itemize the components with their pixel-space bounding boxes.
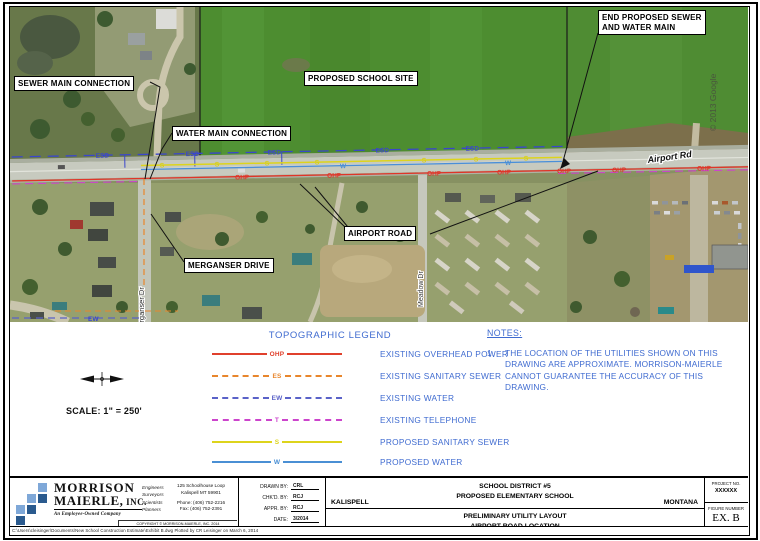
google-credit: © 2013 Google (708, 73, 718, 131)
checked-by-field: CHK'D. BY:RCJ (238, 494, 319, 501)
title-block: MORRISON MAIERLE, INC. An Employee-Owned… (10, 476, 748, 528)
legend-sample-w: W (212, 459, 342, 466)
svg-text:ESD: ESD (268, 149, 282, 156)
legend-area: TOPOGRAPHIC LEGEND OHP EXISTING OVERHEAD… (10, 322, 748, 476)
label-merganser-drive: MERGANSER DRIVE (184, 258, 274, 273)
label-end-proposed-line1: END PROPOSED SEWER (602, 13, 702, 23)
label-proposed-school-site: PROPOSED SCHOOL SITE (304, 71, 418, 86)
drawn-by-field: DRAWN BY:CRL (238, 483, 319, 490)
svg-text:ESD: ESD (466, 145, 480, 152)
figure-number: EX. B (704, 512, 748, 524)
aerial-photo: ESD ESD ESD ESD ESD S S S S S S S (10, 7, 748, 322)
svg-text:ESD: ESD (186, 151, 200, 158)
firm-rule (54, 509, 142, 510)
project-no: XXXXXX (704, 488, 748, 494)
legend-sample-s: S (212, 439, 342, 446)
scale-text: SCALE: 1" = 250' (66, 406, 142, 416)
drawing-sheet: ESD ESD ESD ESD ESD S S S S S S S (0, 0, 760, 541)
svg-text:W: W (340, 163, 347, 170)
svg-text:OHP: OHP (497, 169, 512, 176)
legend-row-ew: EW EXISTING WATER (212, 392, 454, 404)
map-area: ESD ESD ESD ESD ESD S S S S S S S (10, 7, 748, 323)
svg-text:OHP: OHP (235, 174, 250, 181)
firm-tagline: An Employee-Owned Company (54, 512, 147, 517)
svg-text:OHP: OHP (612, 167, 627, 174)
legend-row-w: W PROPOSED WATER (212, 456, 463, 468)
date-field: DATE:3/2014 (238, 516, 319, 523)
firm-cell: MORRISON MAIERLE, INC. An Employee-Owned… (10, 478, 239, 528)
svg-text:OHP: OHP (557, 168, 572, 175)
legend-row-t: T EXISTING TELEPHONE (212, 414, 477, 426)
legend-row-es: ES EXISTING SANITARY SEWER (212, 370, 501, 382)
legend-sample-t: T (212, 417, 342, 424)
north-arrow-icon (78, 370, 126, 388)
plot-path-strip: C:\Users\cleisinger\Documents\New School… (10, 526, 748, 535)
notes-title: NOTES: (487, 328, 747, 338)
svg-text:OHP: OHP (327, 172, 342, 179)
number-cell: PROJECT NO. XXXXXX FIGURE NUMBER EX. B (704, 478, 748, 528)
project-no-label: PROJECT NO. (704, 481, 748, 486)
legend-sample-ohp: OHP (212, 351, 342, 358)
project-title-cell: KALISPELL SCHOOL DISTRICT #5 PROPOSED EL… (326, 478, 705, 528)
street-name-meadow: Meadow Dr (418, 271, 425, 307)
legend-row-ohp: OHP EXISTING OVERHEAD POWER (212, 348, 508, 360)
legend-sample-es: ES (212, 373, 342, 380)
svg-text:OHP: OHP (427, 171, 442, 178)
notes-item: 1. THE LOCATION OF THE UTILITIES SHOWN O… (487, 348, 747, 394)
legend-row-s: S PROPOSED SANITARY SEWER (212, 436, 510, 448)
notes: NOTES: 1. THE LOCATION OF THE UTILITIES … (487, 328, 747, 394)
approved-by-field: APPR. BY:RCJ (238, 505, 319, 512)
firm-name: MORRISON MAIERLE, INC. An Employee-Owned… (54, 481, 147, 517)
svg-text:ESD: ESD (376, 147, 390, 154)
project-state: MONTANA (664, 499, 698, 506)
figure-number-label: FIGURE NUMBER (704, 506, 748, 511)
legend-title: TOPOGRAPHIC LEGEND (200, 330, 460, 341)
legend-sample-ew: EW (212, 395, 342, 402)
label-end-proposed: END PROPOSED SEWER AND WATER MAIN (598, 10, 706, 35)
firm-disciplines: Engineers Surveyors Scientists Planners (142, 485, 164, 515)
label-end-proposed-line2: AND WATER MAIN (602, 23, 702, 33)
street-name-merganser: Merganser Dr (137, 287, 146, 322)
svg-text:ESD: ESD (96, 153, 110, 160)
plot-path-text: C:\Users\cleisinger\Documents\New School… (10, 527, 748, 533)
svg-text:W: W (505, 160, 512, 167)
svg-text:OHP: OHP (697, 165, 712, 172)
firm-address: 125 Schoolhouse Loop Kalispell MT 59901 … (166, 483, 236, 513)
label-sewer-main-connection: SEWER MAIN CONNECTION (14, 76, 134, 91)
signature-fields-cell: DRAWN BY:CRL CHK'D. BY:RCJ APPR. BY:RCJ … (238, 478, 326, 528)
label-airport-road: AIRPORT ROAD (344, 226, 416, 241)
label-water-main-connection: WATER MAIN CONNECTION (172, 126, 291, 141)
morrison-maierle-logo-icon (16, 481, 50, 527)
project-name: SCHOOL DISTRICT #5 PROPOSED ELEMENTARY S… (326, 482, 704, 502)
